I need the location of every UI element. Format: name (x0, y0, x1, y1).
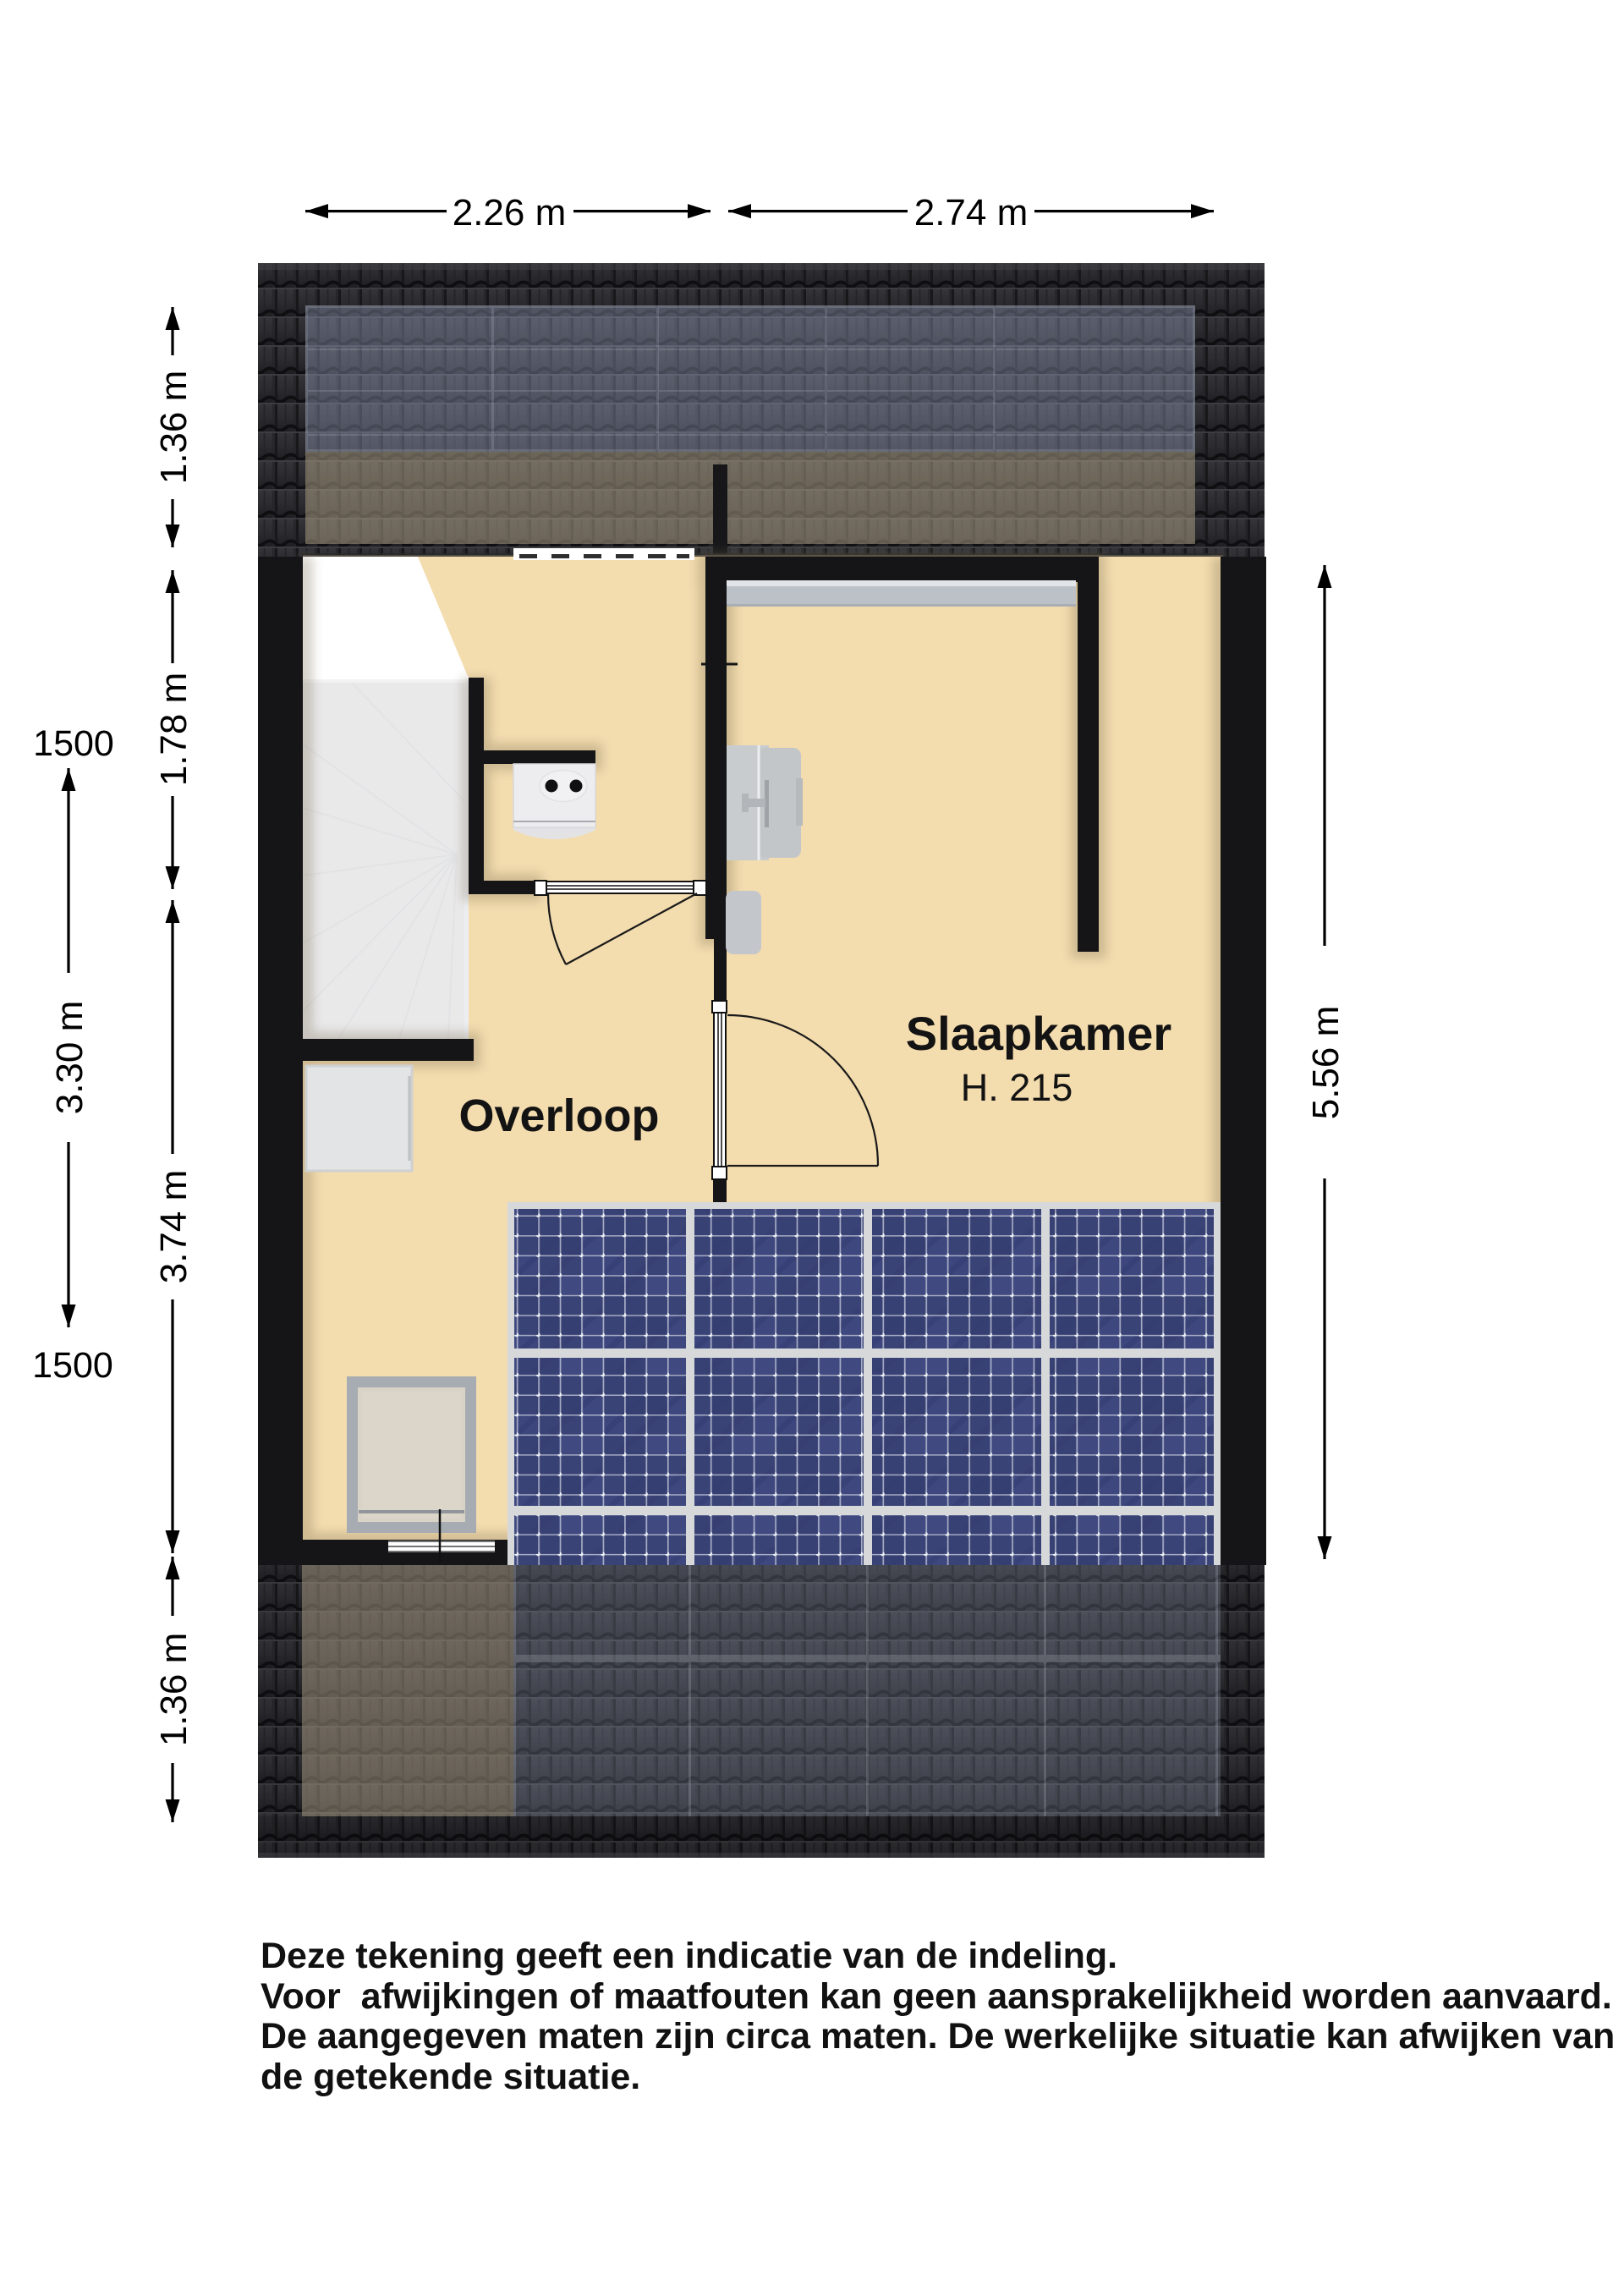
svg-text:Voor afwijkingen of maatfoute: Voor afwijkingen of maatfouten kan geen … (261, 1976, 1612, 2017)
svg-text:H. 215: H. 215 (961, 1066, 1073, 1109)
svg-text:3.74 m: 3.74 m (153, 1170, 195, 1284)
svg-text:Slaapkamer: Slaapkamer (906, 1007, 1171, 1060)
svg-text:2.74 m: 2.74 m (914, 192, 1029, 233)
svg-text:1.36 m: 1.36 m (153, 371, 195, 485)
svg-text:2.26 m: 2.26 m (453, 192, 567, 233)
svg-text:Deze tekening geeft een indica: Deze tekening geeft een indicatie van de… (261, 1936, 1117, 1976)
svg-text:Overloop: Overloop (458, 1090, 659, 1141)
svg-text:5.56 m: 5.56 m (1305, 1006, 1347, 1120)
svg-text:de getekende situatie.: de getekende situatie. (261, 2057, 640, 2097)
svg-text:1500: 1500 (33, 723, 114, 764)
svg-text:1.78 m: 1.78 m (153, 673, 195, 787)
svg-text:1.36 m: 1.36 m (153, 1633, 195, 1747)
svg-text:De aangegeven maten zijn circa: De aangegeven maten zijn circa maten. De… (261, 2016, 1615, 2057)
svg-text:1500: 1500 (32, 1345, 113, 1386)
svg-text:3.30 m: 3.30 m (49, 1001, 91, 1115)
